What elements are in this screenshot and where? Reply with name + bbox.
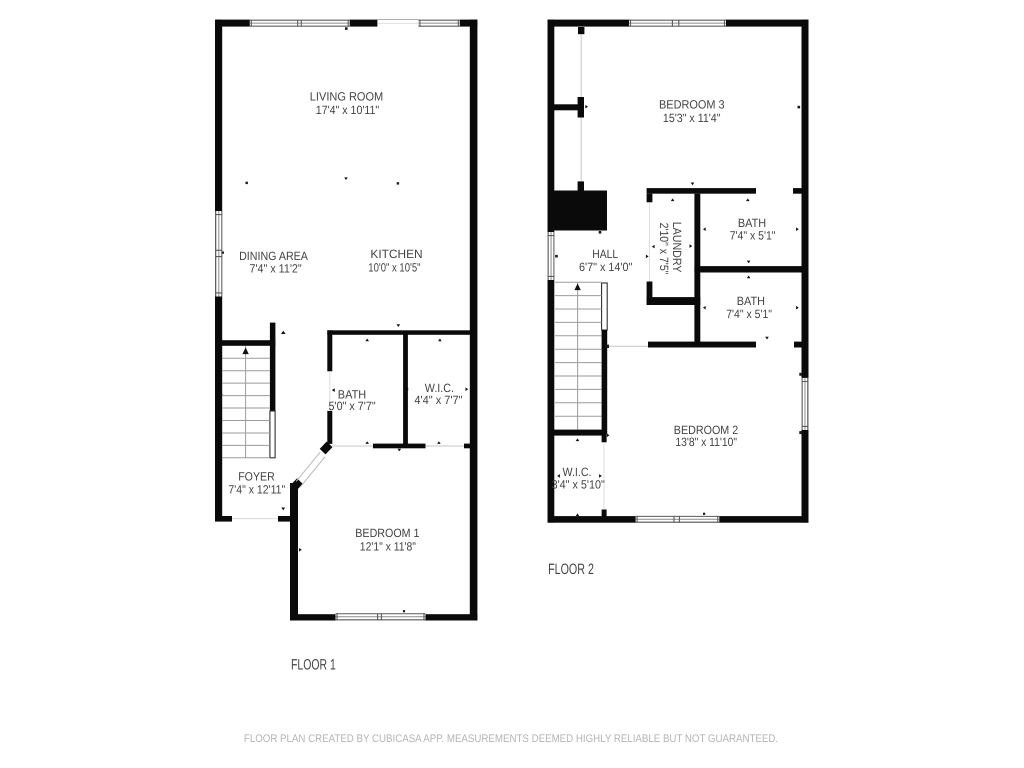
svg-text:4'4" x 7'7": 4'4" x 7'7"	[414, 393, 462, 407]
svg-text:FLOOR 1: FLOOR 1	[291, 657, 336, 674]
svg-text:5'0" x 7'7": 5'0" x 7'7"	[329, 399, 376, 413]
svg-text:FLOOR PLAN CREATED BY CUBICASA: FLOOR PLAN CREATED BY CUBICASA APP. MEAS…	[244, 733, 778, 745]
svg-text:17'4" x 10'11": 17'4" x 10'11"	[316, 103, 379, 117]
svg-text:12'1" x 11'8": 12'1" x 11'8"	[360, 539, 416, 553]
svg-text:7'4" x 5'1": 7'4" x 5'1"	[730, 229, 776, 243]
svg-text:2'10" x 7'5": 2'10" x 7'5"	[657, 223, 671, 275]
svg-text:7'4" x 5'1": 7'4" x 5'1"	[726, 307, 772, 321]
svg-text:BEDROOM 1: BEDROOM 1	[355, 526, 419, 540]
svg-text:7'4" x 11'2": 7'4" x 11'2"	[250, 261, 302, 275]
svg-text:HALL: HALL	[592, 247, 618, 261]
svg-text:KITCHEN: KITCHEN	[370, 247, 422, 261]
svg-text:BEDROOM 3: BEDROOM 3	[659, 97, 725, 111]
svg-text:7'4" x 12'11": 7'4" x 12'11"	[228, 482, 285, 496]
svg-text:10'0" x 10'5": 10'0" x 10'5"	[368, 261, 420, 275]
svg-text:3'4" x 5'10": 3'4" x 5'10"	[552, 477, 605, 491]
svg-text:15'3" x 11'4": 15'3" x 11'4"	[663, 111, 721, 125]
svg-text:13'8" x 11'10": 13'8" x 11'10"	[675, 435, 737, 449]
svg-text:BATH: BATH	[737, 294, 765, 308]
svg-text:FLOOR 2: FLOOR 2	[548, 561, 594, 578]
svg-text:FOYER: FOYER	[238, 469, 275, 483]
svg-text:LIVING ROOM: LIVING ROOM	[310, 90, 383, 104]
svg-text:6'7" x 14'0": 6'7" x 14'0"	[579, 260, 632, 274]
svg-text:LAUNDRY: LAUNDRY	[670, 222, 684, 273]
